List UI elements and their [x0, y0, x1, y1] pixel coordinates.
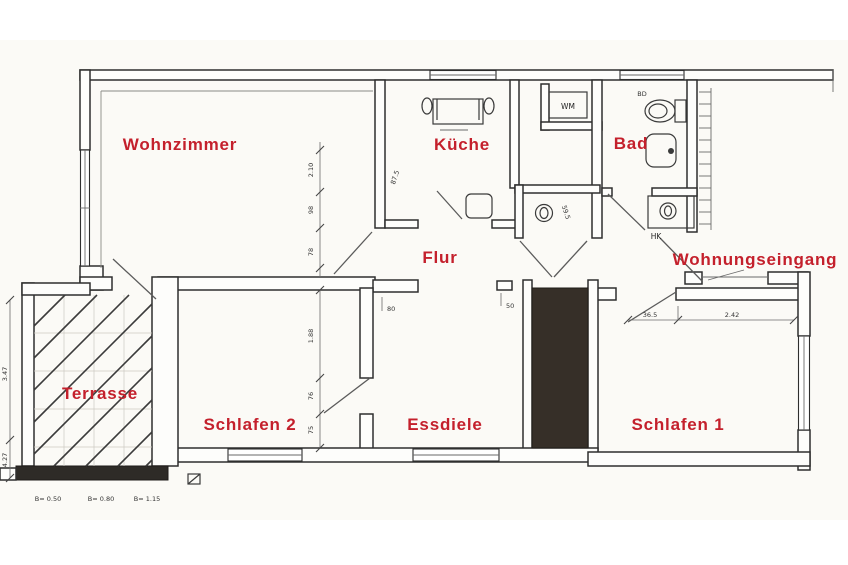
- walls-part: [515, 185, 600, 193]
- walls-part: [80, 70, 90, 150]
- floor-plan-svg: 2.10 98 78 1.88 76 75 87.5 59.5 36.5 2.4…: [0, 0, 848, 565]
- walls-part: [497, 281, 512, 290]
- window-bad-top: [620, 71, 684, 80]
- washbasin-icon-part: [668, 148, 674, 154]
- window-wohnzimmer-left: [80, 150, 90, 266]
- walls-part: [588, 280, 598, 450]
- walls-part: [385, 220, 418, 228]
- room-label-schlafen1: Schlafen 1: [631, 415, 724, 434]
- walls-part: [22, 283, 34, 466]
- dim-terrace-parapet-2: B= 1.15: [134, 495, 160, 503]
- room-label-kueche: Küche: [434, 135, 490, 154]
- window-essdiele-bottom: [413, 449, 499, 461]
- walls-part: [515, 185, 523, 238]
- walls-part: [588, 452, 810, 466]
- walls-part: [158, 277, 375, 290]
- dim-terrace-parapet-0: B= 0.50: [35, 495, 61, 503]
- window-schlafen2-bottom: [228, 449, 302, 461]
- dim-terrace-parapet-1: B= 0.80: [88, 495, 114, 503]
- walls-part: [676, 288, 800, 300]
- washing-machine-label: WM: [561, 102, 575, 111]
- radiator-label: HK: [651, 232, 663, 241]
- room-label-bad: Bad: [614, 134, 649, 153]
- dim-essdiele-0: 80: [387, 305, 395, 313]
- room-label-schlafen2: Schlafen 2: [203, 415, 296, 434]
- walls-part: [798, 272, 810, 336]
- window-schlafen1-right: [799, 336, 810, 430]
- walls-part: [373, 280, 418, 292]
- floor-plan-page: 2.10 98 78 1.88 76 75 87.5 59.5 36.5 2.4…: [0, 0, 848, 565]
- dim-essdiele-1: 50: [506, 302, 514, 310]
- dim-left-chain-3: 1.88: [307, 329, 315, 343]
- dim-left-chain-5: 75: [307, 426, 315, 434]
- walls-part: [523, 280, 532, 450]
- window-kueche-top: [430, 71, 496, 80]
- walls-part: [360, 288, 373, 378]
- dim-left-chain-0: 2.10: [307, 163, 315, 177]
- room-label-flur: Flur: [422, 248, 457, 267]
- walls-part: [16, 466, 168, 480]
- walls-part: [652, 188, 697, 196]
- walls-part: [152, 277, 178, 466]
- room-label-wohnungseingang: Wohnungseingang: [673, 250, 838, 269]
- room-label-essdiele: Essdiele: [407, 415, 482, 434]
- walls-part: [687, 80, 697, 232]
- walls-part: [22, 283, 90, 295]
- dim-schlafen1-1: 2.42: [725, 311, 739, 319]
- chimney-shaft: [532, 288, 588, 448]
- dim-left-chain-4: 76: [307, 392, 315, 400]
- dim-schlafen1-0: 36.5: [643, 311, 657, 319]
- dim-left-chain-2: 78: [307, 248, 315, 256]
- walls-part: [592, 80, 602, 238]
- bidet-label: BD: [637, 90, 646, 98]
- dim-left-chain-1: 98: [307, 206, 315, 214]
- room-label-wohnzimmer: Wohnzimmer: [123, 135, 237, 154]
- walls-part: [375, 80, 385, 228]
- room-label-terrasse: Terrasse: [62, 384, 138, 403]
- walls-part: [510, 80, 519, 188]
- walls-part: [602, 188, 612, 196]
- dim-terrace-side-0: 3.47: [1, 367, 9, 381]
- dim-terrace-side-1: 4.27: [1, 453, 9, 467]
